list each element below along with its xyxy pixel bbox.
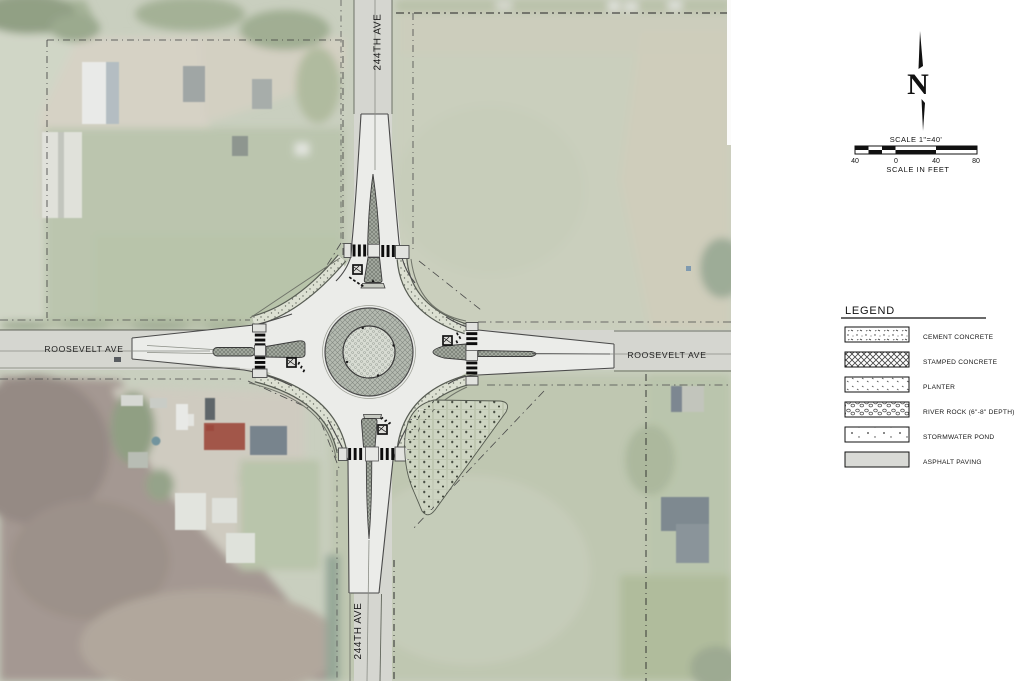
svg-text:SCALE 1"=40': SCALE 1"=40' bbox=[890, 135, 943, 144]
svg-text:LEGEND: LEGEND bbox=[845, 305, 895, 317]
svg-text:ROOSEVELT AVE: ROOSEVELT AVE bbox=[44, 344, 123, 354]
svg-text:RIVER ROCK (6"-8" DEPTH): RIVER ROCK (6"-8" DEPTH) bbox=[923, 409, 1015, 416]
svg-text:PLANTER: PLANTER bbox=[923, 384, 955, 391]
svg-text:STORMWATER POND: STORMWATER POND bbox=[923, 434, 994, 441]
svg-text:ROOSEVELT AVE: ROOSEVELT AVE bbox=[627, 350, 706, 360]
svg-text:244TH AVE: 244TH AVE bbox=[353, 603, 364, 660]
svg-text:CEMENT CONCRETE: CEMENT CONCRETE bbox=[923, 334, 994, 341]
svg-text:ASPHALT PAVING: ASPHALT PAVING bbox=[923, 459, 982, 466]
svg-text:244TH AVE: 244TH AVE bbox=[373, 14, 384, 71]
svg-text:40: 40 bbox=[932, 158, 940, 165]
svg-text:STAMPED CONCRETE: STAMPED CONCRETE bbox=[923, 359, 998, 366]
svg-text:SCALE IN FEET: SCALE IN FEET bbox=[886, 165, 949, 174]
svg-text:80: 80 bbox=[972, 158, 980, 165]
svg-text:40: 40 bbox=[851, 158, 859, 165]
svg-text:N: N bbox=[907, 68, 929, 101]
svg-text:0: 0 bbox=[894, 158, 898, 165]
